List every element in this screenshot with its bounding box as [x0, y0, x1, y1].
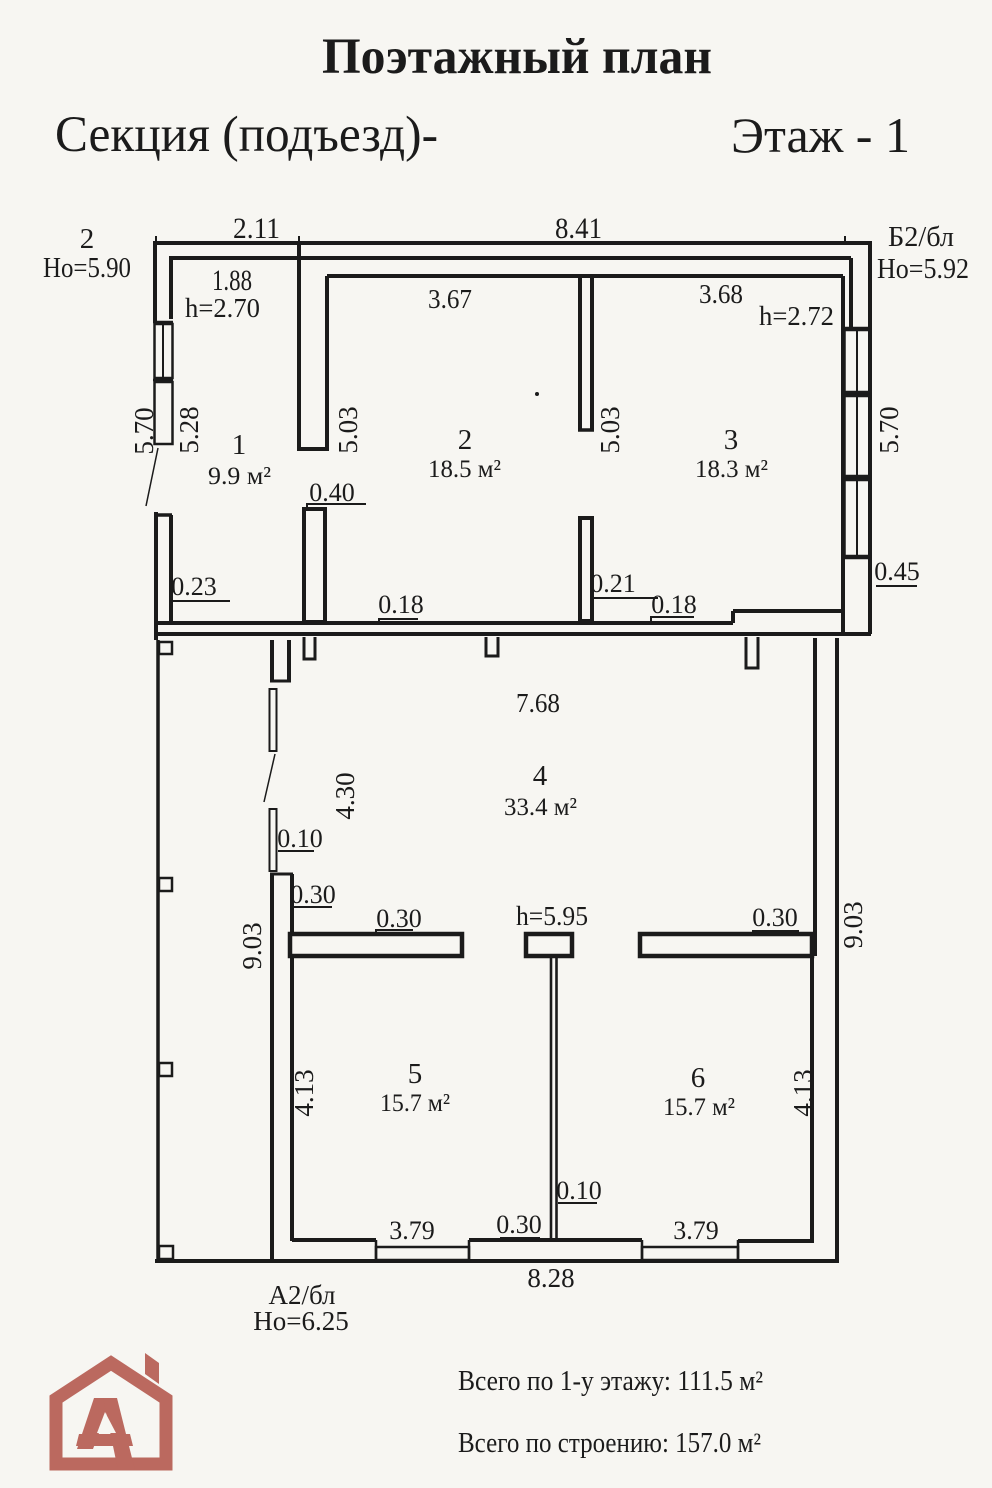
svg-text:5: 5 — [408, 1058, 423, 1090]
svg-text:18.3 м²: 18.3 м² — [695, 456, 768, 483]
svg-text:0.21: 0.21 — [590, 569, 636, 598]
svg-text:Но=5.90: Но=5.90 — [43, 252, 131, 284]
svg-text:9.9 м²: 9.9 м² — [208, 463, 271, 490]
svg-text:5.70: 5.70 — [129, 407, 159, 454]
svg-text:Но=6.25: Но=6.25 — [253, 1306, 348, 1336]
svg-text:8.28: 8.28 — [527, 1263, 574, 1293]
svg-text:Но=5.92: Но=5.92 — [877, 253, 969, 285]
svg-text:5.70: 5.70 — [874, 406, 904, 453]
svg-text:5.28: 5.28 — [174, 406, 204, 453]
svg-text:h=2.72: h=2.72 — [759, 301, 834, 331]
svg-text:Б2/бл: Б2/бл — [888, 221, 954, 253]
svg-text:3.67: 3.67 — [428, 284, 472, 314]
svg-text:18.5 м²: 18.5 м² — [428, 456, 501, 483]
svg-text:0.18: 0.18 — [651, 590, 697, 619]
svg-text:5.03: 5.03 — [333, 406, 363, 453]
svg-text:1: 1 — [232, 429, 247, 461]
svg-text:Всего по строению: 157.0 м²: Всего по строению: 157.0 м² — [458, 1428, 761, 1459]
svg-text:4.13: 4.13 — [788, 1069, 818, 1116]
svg-text:0.30: 0.30 — [496, 1210, 542, 1239]
svg-text:0.10: 0.10 — [556, 1176, 602, 1205]
svg-text:9.03: 9.03 — [237, 922, 267, 969]
svg-text:h=2.70: h=2.70 — [185, 293, 260, 323]
svg-text:2.11: 2.11 — [233, 212, 280, 245]
svg-text:33.4 м²: 33.4 м² — [504, 794, 577, 821]
svg-text:3: 3 — [724, 424, 739, 456]
svg-text:4.13: 4.13 — [289, 1069, 319, 1116]
svg-text:0.40: 0.40 — [309, 478, 355, 507]
svg-text:Секция (подъезд)-: Секция (подъезд)- — [55, 107, 438, 163]
svg-text:Этаж - 1: Этаж - 1 — [731, 107, 910, 163]
svg-text:15.7 м²: 15.7 м² — [380, 1090, 450, 1117]
svg-text:0.23: 0.23 — [171, 572, 217, 601]
svg-text:0.10: 0.10 — [277, 824, 323, 853]
svg-text:4.30: 4.30 — [330, 772, 360, 819]
svg-text:0.30: 0.30 — [752, 903, 798, 932]
svg-text:Поэтажный план: Поэтажный план — [322, 29, 712, 85]
svg-text:h=5.95: h=5.95 — [516, 901, 588, 931]
svg-text:9.03: 9.03 — [838, 901, 868, 948]
svg-text:3.68: 3.68 — [699, 279, 743, 309]
svg-text:15.7 м²: 15.7 м² — [663, 1094, 735, 1121]
svg-text:2: 2 — [80, 223, 95, 255]
svg-text:0.30: 0.30 — [376, 904, 422, 933]
svg-text:6: 6 — [691, 1062, 706, 1094]
svg-text:Всего по 1-у этажу: 111.5 м²: Всего по 1-у этажу: 111.5 м² — [458, 1366, 763, 1397]
svg-text:3.79: 3.79 — [389, 1216, 435, 1245]
svg-text:7.68: 7.68 — [516, 688, 560, 718]
svg-text:3.79: 3.79 — [673, 1216, 719, 1245]
svg-text:5.03: 5.03 — [595, 406, 625, 453]
svg-text:0.30: 0.30 — [290, 880, 336, 909]
svg-text:8.41: 8.41 — [555, 212, 602, 245]
svg-text:0.45: 0.45 — [874, 557, 920, 586]
svg-text:0.18: 0.18 — [378, 590, 424, 619]
svg-text:2: 2 — [458, 424, 473, 456]
svg-text:4: 4 — [533, 760, 548, 792]
